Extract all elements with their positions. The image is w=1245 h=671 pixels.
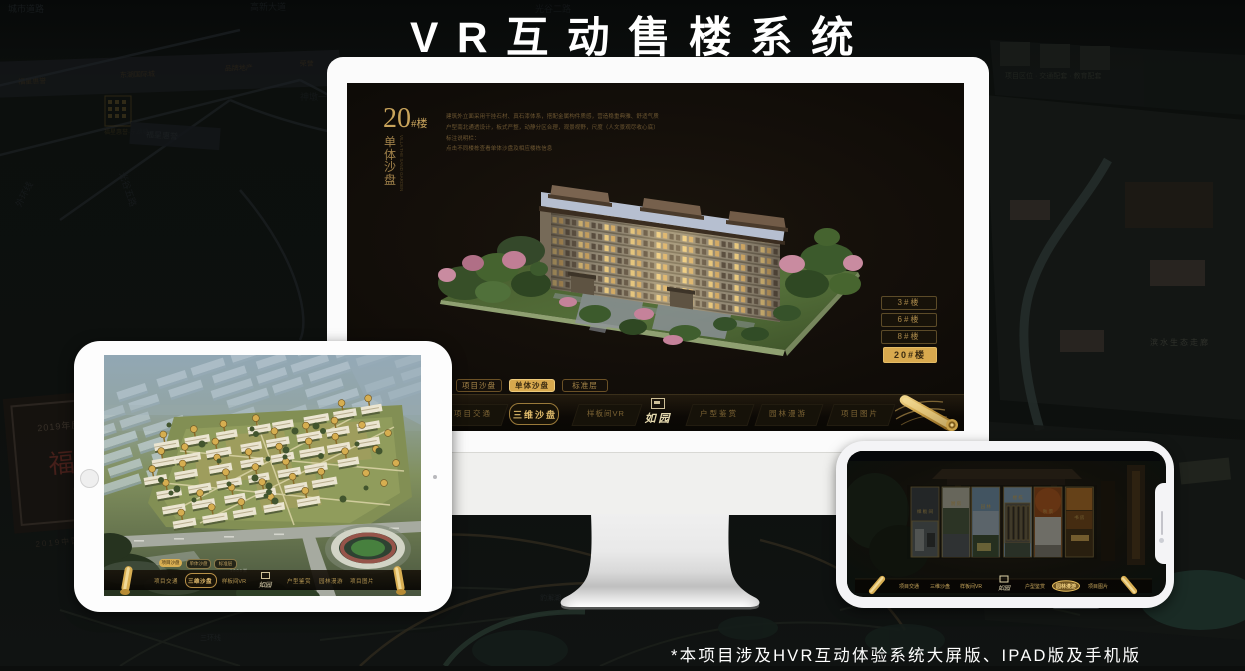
svg-text:滨水生态走廊: 滨水生态走廊 xyxy=(1150,337,1210,347)
svg-text:户型鉴赏: 户型鉴赏 xyxy=(1025,583,1045,590)
svg-text:项目交通: 项目交通 xyxy=(899,583,919,590)
svg-text:项目图片: 项目图片 xyxy=(1088,583,1108,590)
svg-text:如园: 如园 xyxy=(998,584,1011,592)
svg-text:园林漫游: 园林漫游 xyxy=(1056,583,1076,590)
svg-text:三维沙盘: 三维沙盘 xyxy=(930,583,950,590)
svg-text:样板间VR: 样板间VR xyxy=(960,583,982,590)
svg-text:项目区位 · 交通配套 · 教育配套: 项目区位 · 交通配套 · 教育配套 xyxy=(1005,71,1101,80)
svg-text:三环线: 三环线 xyxy=(200,633,221,642)
